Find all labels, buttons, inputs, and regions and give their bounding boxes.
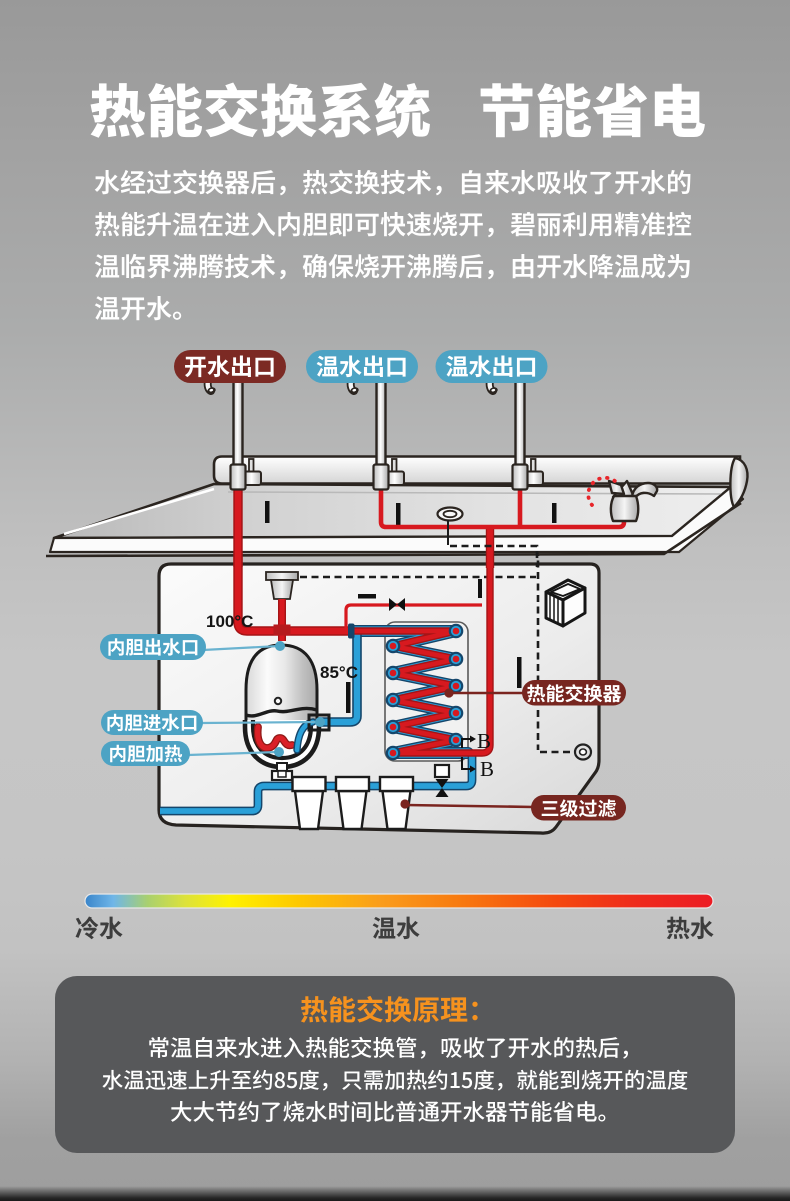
svg-text:B: B (480, 757, 494, 781)
svg-text:100°C: 100°C (206, 612, 253, 631)
svg-text:85°C: 85°C (320, 663, 358, 682)
svg-text:B: B (477, 729, 491, 753)
